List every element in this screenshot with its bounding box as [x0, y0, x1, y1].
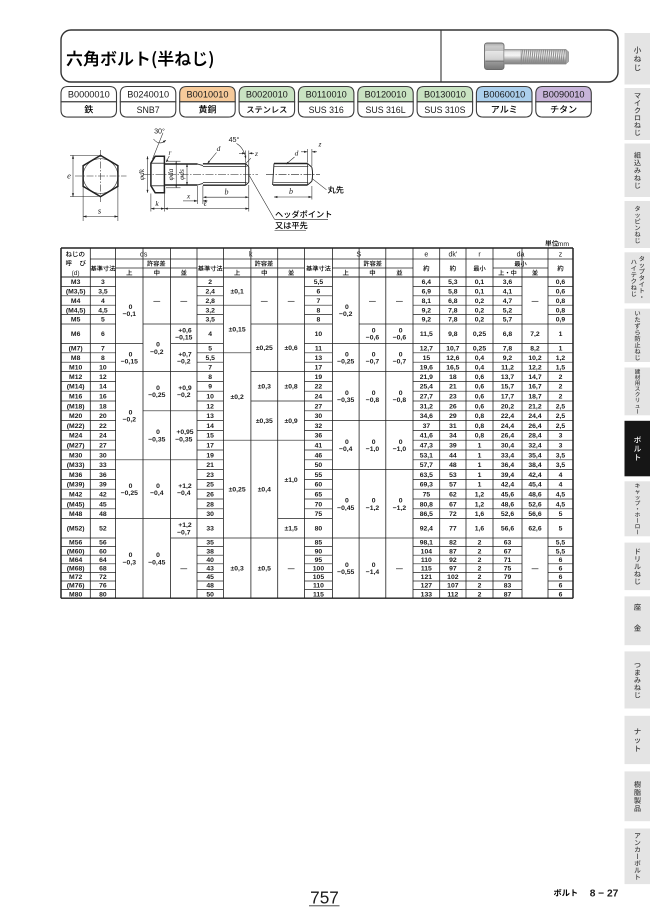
svg-text:50: 50: [315, 462, 323, 469]
svg-text:12: 12: [99, 374, 107, 381]
svg-text:14: 14: [99, 384, 107, 391]
svg-text:d: d: [217, 144, 221, 153]
svg-text:15: 15: [423, 355, 431, 362]
svg-text:32: 32: [315, 423, 323, 430]
svg-text:8: 8: [317, 317, 321, 324]
svg-text:92: 92: [449, 557, 457, 564]
svg-text:0,9: 0,9: [556, 317, 566, 324]
svg-text:φda: φda: [166, 168, 175, 180]
svg-text:±0,3: ±0,3: [258, 384, 271, 391]
svg-text:0: 0: [156, 552, 160, 559]
svg-text:100: 100: [313, 566, 325, 573]
svg-text:z: z: [559, 251, 563, 258]
svg-text:45,6: 45,6: [501, 492, 514, 499]
svg-text:86,5: 86,5: [420, 511, 433, 518]
svg-text:−0,7: −0,7: [393, 359, 407, 366]
svg-text:4,5: 4,5: [556, 501, 566, 508]
svg-text:5,2: 5,2: [503, 307, 513, 314]
svg-text:SUS 310S: SUS 310S: [424, 105, 465, 115]
svg-text:21: 21: [449, 384, 457, 391]
svg-text:0: 0: [399, 439, 403, 446]
svg-text:26,4: 26,4: [501, 433, 514, 440]
svg-text:B0090010: B0090010: [543, 90, 585, 100]
svg-text:87: 87: [449, 548, 457, 555]
svg-text:4,7: 4,7: [503, 298, 513, 305]
svg-text:0: 0: [129, 410, 133, 417]
svg-text:5: 5: [101, 317, 105, 324]
svg-text:z: z: [254, 149, 258, 158]
svg-text:0: 0: [399, 328, 403, 335]
svg-text:(M68): (M68): [67, 566, 85, 573]
svg-text:30: 30: [315, 413, 323, 420]
svg-text:45: 45: [206, 574, 214, 581]
svg-text:97: 97: [449, 566, 457, 573]
svg-text:B0010010: B0010010: [187, 90, 229, 100]
svg-text:33,4: 33,4: [501, 452, 514, 459]
svg-text:k: k: [249, 251, 253, 258]
svg-text:e: e: [424, 251, 428, 258]
svg-text:22,4: 22,4: [501, 413, 514, 420]
svg-text:4,5: 4,5: [556, 492, 566, 499]
svg-text:14: 14: [206, 423, 214, 430]
svg-text:—: —: [288, 566, 295, 573]
svg-text:68: 68: [99, 566, 107, 573]
svg-text:6: 6: [559, 591, 563, 598]
svg-text:−0,6: −0,6: [393, 335, 407, 342]
svg-text:75: 75: [423, 492, 431, 499]
svg-text:2: 2: [478, 548, 482, 555]
svg-text:M72: M72: [69, 574, 82, 581]
svg-text:0: 0: [345, 390, 349, 397]
svg-text:2: 2: [559, 394, 563, 401]
svg-text:—: —: [532, 566, 539, 573]
svg-text:23: 23: [449, 394, 457, 401]
svg-text:31: 31: [449, 423, 457, 430]
svg-text:—: —: [180, 298, 187, 305]
svg-text:7: 7: [208, 364, 212, 371]
svg-text:0: 0: [156, 342, 160, 349]
svg-text:34,6: 34,6: [420, 413, 433, 420]
svg-text:(M76): (M76): [67, 583, 85, 590]
svg-text:8 − 27: 8 − 27: [590, 888, 619, 899]
svg-text:+1,2: +1,2: [178, 483, 192, 490]
svg-text:M10: M10: [69, 364, 82, 371]
svg-text:75: 75: [504, 566, 512, 573]
svg-text:0: 0: [345, 304, 349, 311]
svg-text:17: 17: [206, 443, 214, 450]
svg-text:M12: M12: [69, 374, 82, 381]
svg-text:7: 7: [317, 298, 321, 305]
svg-text:0: 0: [372, 390, 376, 397]
svg-text:7,2: 7,2: [530, 331, 540, 338]
svg-text:127: 127: [421, 583, 433, 590]
svg-text:87: 87: [504, 591, 512, 598]
svg-text:104: 104: [421, 548, 433, 555]
svg-text:25: 25: [206, 482, 214, 489]
svg-text:4: 4: [559, 482, 563, 489]
svg-text:25,4: 25,4: [420, 384, 433, 391]
svg-text:11,2: 11,2: [501, 364, 514, 371]
svg-text:(M22): (M22): [67, 423, 85, 430]
svg-text:0: 0: [345, 562, 349, 569]
svg-text:−0,8: −0,8: [393, 397, 407, 404]
svg-text:39: 39: [449, 443, 457, 450]
svg-text:45: 45: [99, 501, 107, 508]
svg-text:1,5: 1,5: [556, 364, 566, 371]
svg-text:2,5: 2,5: [556, 403, 566, 410]
svg-text:62,6: 62,6: [528, 526, 541, 533]
svg-text:d: d: [295, 149, 299, 158]
svg-text:±0,2: ±0,2: [231, 394, 244, 401]
svg-text:757: 757: [310, 887, 339, 907]
svg-text:0: 0: [372, 351, 376, 358]
svg-text:3: 3: [559, 443, 563, 450]
svg-text:1,2: 1,2: [475, 492, 485, 499]
svg-text:5,8: 5,8: [448, 289, 458, 296]
svg-text:0: 0: [156, 385, 160, 392]
svg-text:64: 64: [99, 557, 107, 564]
svg-text:2: 2: [559, 374, 563, 381]
svg-text:52: 52: [99, 526, 107, 533]
svg-text:dk': dk': [448, 251, 457, 258]
svg-text:36: 36: [99, 472, 107, 479]
svg-text:98,1: 98,1: [420, 540, 433, 547]
svg-text:e: e: [67, 171, 71, 181]
svg-text:5,5: 5,5: [556, 548, 566, 555]
svg-text:45°: 45°: [229, 135, 240, 144]
svg-text:0,8: 0,8: [475, 423, 485, 430]
svg-text:0: 0: [129, 483, 133, 490]
svg-text:−0,4: −0,4: [339, 446, 353, 453]
svg-text:18: 18: [449, 374, 457, 381]
svg-text:85: 85: [315, 540, 323, 547]
svg-text:2: 2: [478, 591, 482, 598]
svg-text:−1,2: −1,2: [393, 505, 407, 512]
svg-text:0,6: 0,6: [475, 384, 485, 391]
svg-text:6,9: 6,9: [422, 289, 432, 296]
svg-text:28,4: 28,4: [528, 433, 541, 440]
svg-text:(M7): (M7): [69, 346, 83, 353]
svg-text:48,6: 48,6: [501, 501, 514, 508]
svg-text:M24: M24: [69, 433, 82, 440]
svg-text:82: 82: [449, 540, 457, 547]
svg-text:2: 2: [478, 583, 482, 590]
svg-text:9,2: 9,2: [422, 307, 432, 314]
svg-text:10,7: 10,7: [446, 346, 459, 353]
svg-text:10: 10: [315, 331, 323, 338]
svg-text:7: 7: [101, 346, 105, 353]
svg-text:11: 11: [315, 346, 322, 353]
svg-text:95: 95: [315, 557, 323, 564]
svg-text:1: 1: [559, 331, 563, 338]
svg-text:77: 77: [449, 526, 457, 533]
svg-text:x: x: [186, 192, 191, 201]
svg-text:35,4: 35,4: [528, 452, 541, 459]
svg-text:(M4,5): (M4,5): [66, 307, 86, 314]
svg-text:M48: M48: [69, 511, 82, 518]
svg-text:−0,2: −0,2: [177, 392, 191, 399]
svg-text:−1,0: −1,0: [393, 446, 407, 453]
svg-text:2: 2: [478, 566, 482, 573]
svg-text:−1,2: −1,2: [366, 505, 380, 512]
svg-text:2: 2: [478, 540, 482, 547]
svg-text:56: 56: [99, 540, 107, 547]
svg-text:48: 48: [206, 583, 214, 590]
svg-text:4: 4: [559, 472, 563, 479]
svg-text:—: —: [261, 298, 268, 305]
svg-text:−0,2: −0,2: [123, 417, 137, 424]
svg-text:2,4: 2,4: [205, 289, 215, 296]
svg-text:—: —: [153, 298, 160, 305]
svg-text:8: 8: [208, 374, 212, 381]
svg-text:48: 48: [449, 462, 457, 469]
svg-text:1: 1: [478, 443, 482, 450]
svg-text:0: 0: [129, 552, 133, 559]
svg-text:—: —: [288, 298, 295, 305]
svg-text:±0,25: ±0,25: [256, 345, 273, 352]
svg-text:45,4: 45,4: [528, 482, 541, 489]
svg-text:M42: M42: [69, 492, 82, 499]
svg-text:26: 26: [206, 492, 214, 499]
svg-text:−0,7: −0,7: [366, 359, 380, 366]
svg-text:S: S: [356, 251, 361, 258]
svg-text:5,5: 5,5: [205, 355, 215, 362]
svg-text:26: 26: [449, 403, 457, 410]
svg-text:3,2: 3,2: [205, 307, 215, 314]
svg-text:6: 6: [559, 557, 563, 564]
svg-text:B0020010: B0020010: [246, 90, 288, 100]
svg-text:1: 1: [478, 482, 482, 489]
svg-text:2,5: 2,5: [556, 413, 566, 420]
svg-text:—: —: [396, 566, 403, 573]
svg-text:21,9: 21,9: [420, 374, 433, 381]
svg-text:b: b: [225, 188, 229, 197]
svg-text:(M3,5): (M3,5): [66, 289, 86, 296]
svg-text:0: 0: [156, 429, 160, 436]
svg-text:53: 53: [449, 472, 457, 479]
svg-text:4,5: 4,5: [98, 307, 108, 314]
svg-text:30,4: 30,4: [501, 443, 514, 450]
svg-text:+0,9: +0,9: [178, 385, 192, 392]
svg-text:+0,7: +0,7: [178, 351, 192, 358]
svg-text:42,4: 42,4: [501, 482, 514, 489]
svg-text:−0,25: −0,25: [148, 392, 165, 399]
svg-text:44: 44: [449, 452, 457, 459]
svg-text:−0,8: −0,8: [366, 397, 380, 404]
svg-text:38: 38: [206, 548, 214, 555]
svg-text:30: 30: [206, 511, 214, 518]
svg-text:0: 0: [399, 351, 403, 358]
svg-text:M80: M80: [69, 591, 82, 598]
svg-text:±0,9: ±0,9: [285, 418, 298, 425]
svg-text:31,2: 31,2: [420, 403, 433, 410]
svg-text:—: —: [396, 298, 403, 305]
svg-text:19: 19: [206, 452, 214, 459]
svg-text:24,4: 24,4: [501, 423, 514, 430]
svg-text:56,6: 56,6: [501, 526, 514, 533]
svg-text:56,6: 56,6: [528, 511, 541, 518]
svg-text:13: 13: [206, 413, 214, 420]
svg-text:50: 50: [206, 591, 214, 598]
svg-text:(M33): (M33): [67, 462, 85, 469]
svg-text:−0,15: −0,15: [121, 359, 138, 366]
svg-text:0: 0: [399, 390, 403, 397]
svg-text:72: 72: [99, 574, 107, 581]
svg-text:9,2: 9,2: [422, 317, 432, 324]
svg-text:28: 28: [206, 501, 214, 508]
svg-text:5,5: 5,5: [556, 540, 566, 547]
svg-text:12,2: 12,2: [528, 364, 541, 371]
svg-text:32,4: 32,4: [528, 443, 541, 450]
svg-text:(M14): (M14): [67, 384, 85, 391]
svg-text:42,4: 42,4: [528, 472, 541, 479]
svg-text:5,5: 5,5: [314, 279, 324, 286]
svg-text:62: 62: [449, 492, 457, 499]
svg-text:0,2: 0,2: [475, 307, 485, 314]
svg-text:(M60): (M60): [67, 548, 85, 555]
svg-text:−0,2: −0,2: [177, 359, 191, 366]
svg-text:−1,0: −1,0: [366, 446, 380, 453]
svg-text:21: 21: [206, 462, 214, 469]
svg-text:0: 0: [372, 562, 376, 569]
svg-text:57: 57: [449, 482, 457, 489]
svg-text:71: 71: [504, 557, 512, 564]
svg-text:+0,95: +0,95: [176, 429, 193, 436]
svg-text:75: 75: [315, 511, 323, 518]
svg-text:2,8: 2,8: [205, 298, 215, 305]
svg-text:B0000010: B0000010: [68, 90, 110, 100]
svg-text:5: 5: [559, 511, 563, 518]
svg-text:3,5: 3,5: [556, 462, 566, 469]
svg-text:80: 80: [315, 526, 323, 533]
svg-text:M30: M30: [69, 452, 82, 459]
svg-text:−0,15: −0,15: [175, 335, 192, 342]
svg-text:1: 1: [478, 472, 482, 479]
svg-text:+1,2: +1,2: [178, 522, 192, 529]
svg-text:M3: M3: [71, 279, 81, 286]
svg-text:±1,0: ±1,0: [285, 477, 298, 484]
svg-text:6,8: 6,8: [448, 298, 458, 305]
svg-text:3: 3: [101, 279, 105, 286]
svg-text:6: 6: [101, 331, 105, 338]
svg-text:±0,35: ±0,35: [256, 418, 273, 425]
svg-text:9,8: 9,8: [448, 331, 458, 338]
svg-text:52,6: 52,6: [501, 511, 514, 518]
svg-text:M16: M16: [69, 394, 82, 401]
svg-text:6,8: 6,8: [503, 331, 513, 338]
svg-text:0,6: 0,6: [475, 394, 485, 401]
svg-text:34: 34: [449, 433, 457, 440]
svg-text:±0,5: ±0,5: [258, 566, 271, 573]
svg-text:115: 115: [421, 566, 432, 573]
svg-text:1: 1: [478, 452, 482, 459]
svg-text:r: r: [169, 148, 172, 157]
svg-text:4: 4: [208, 331, 212, 338]
svg-text:23: 23: [206, 472, 214, 479]
svg-text:1,2: 1,2: [475, 501, 485, 508]
svg-text:30: 30: [99, 452, 107, 459]
svg-text:12,7: 12,7: [420, 346, 433, 353]
svg-text:0: 0: [156, 483, 160, 490]
svg-text:−0,35: −0,35: [337, 397, 354, 404]
svg-text:B0240010: B0240010: [127, 90, 169, 100]
svg-text:27: 27: [99, 443, 107, 450]
svg-text:43: 43: [206, 566, 214, 573]
svg-text:22: 22: [99, 423, 107, 430]
svg-text:6,4: 6,4: [422, 279, 432, 286]
svg-text:16,5: 16,5: [446, 364, 459, 371]
svg-text:15,7: 15,7: [501, 384, 514, 391]
svg-text:30°: 30°: [154, 127, 165, 136]
svg-text:63: 63: [504, 540, 512, 547]
svg-text:(M18): (M18): [67, 403, 85, 410]
svg-text:70: 70: [315, 501, 323, 508]
svg-text:±0,25: ±0,25: [229, 487, 246, 494]
svg-text:−0,35: −0,35: [175, 436, 192, 443]
svg-text:17,7: 17,7: [501, 394, 514, 401]
svg-text:6: 6: [559, 583, 563, 590]
svg-text:107: 107: [447, 583, 459, 590]
svg-text:0: 0: [129, 304, 133, 311]
svg-text:55: 55: [315, 472, 323, 479]
svg-text:−0,25: −0,25: [337, 359, 354, 366]
svg-text:M5: M5: [71, 317, 81, 324]
svg-text:10: 10: [206, 394, 214, 401]
svg-text:115: 115: [313, 591, 324, 598]
svg-text:±0,4: ±0,4: [258, 487, 271, 494]
svg-text:mm: mm: [558, 241, 570, 248]
svg-text:16,7: 16,7: [528, 384, 541, 391]
svg-text:da: da: [517, 251, 525, 258]
svg-text:14,7: 14,7: [528, 374, 541, 381]
svg-text:20,2: 20,2: [501, 403, 514, 410]
svg-text:133: 133: [421, 591, 433, 598]
svg-text:53,1: 53,1: [420, 452, 433, 459]
svg-text:40: 40: [206, 557, 214, 564]
svg-text:0,1: 0,1: [475, 279, 485, 286]
svg-text:SUS 316: SUS 316: [309, 105, 344, 115]
svg-text:3,5: 3,5: [556, 452, 566, 459]
svg-text:M6: M6: [71, 331, 81, 338]
svg-text:0,6: 0,6: [556, 279, 566, 286]
svg-text:±0,8: ±0,8: [285, 384, 298, 391]
svg-text:27,7: 27,7: [420, 394, 433, 401]
svg-text:0,4: 0,4: [475, 355, 485, 362]
svg-text:2: 2: [478, 557, 482, 564]
svg-text:M36: M36: [69, 472, 82, 479]
svg-text:(M45): (M45): [67, 501, 85, 508]
svg-text:−0,25: −0,25: [121, 490, 138, 497]
svg-text:22: 22: [315, 384, 323, 391]
svg-text:37: 37: [423, 423, 431, 430]
svg-text:±0,15: ±0,15: [229, 326, 246, 333]
svg-text:1: 1: [559, 346, 563, 353]
svg-text:48,6: 48,6: [528, 492, 541, 499]
svg-text:18: 18: [99, 403, 107, 410]
svg-text:1,2: 1,2: [556, 355, 566, 362]
svg-text:3: 3: [559, 433, 563, 440]
svg-text:121: 121: [421, 574, 433, 581]
svg-text:5,3: 5,3: [448, 279, 458, 286]
svg-text:0: 0: [345, 439, 349, 446]
svg-text:1,6: 1,6: [475, 526, 485, 533]
svg-text:6: 6: [317, 289, 321, 296]
svg-text:48: 48: [99, 511, 107, 518]
svg-text:13,7: 13,7: [501, 374, 514, 381]
svg-text:0,2: 0,2: [475, 298, 485, 305]
svg-text:SNB7: SNB7: [137, 105, 160, 115]
svg-text:(M27): (M27): [67, 443, 85, 450]
